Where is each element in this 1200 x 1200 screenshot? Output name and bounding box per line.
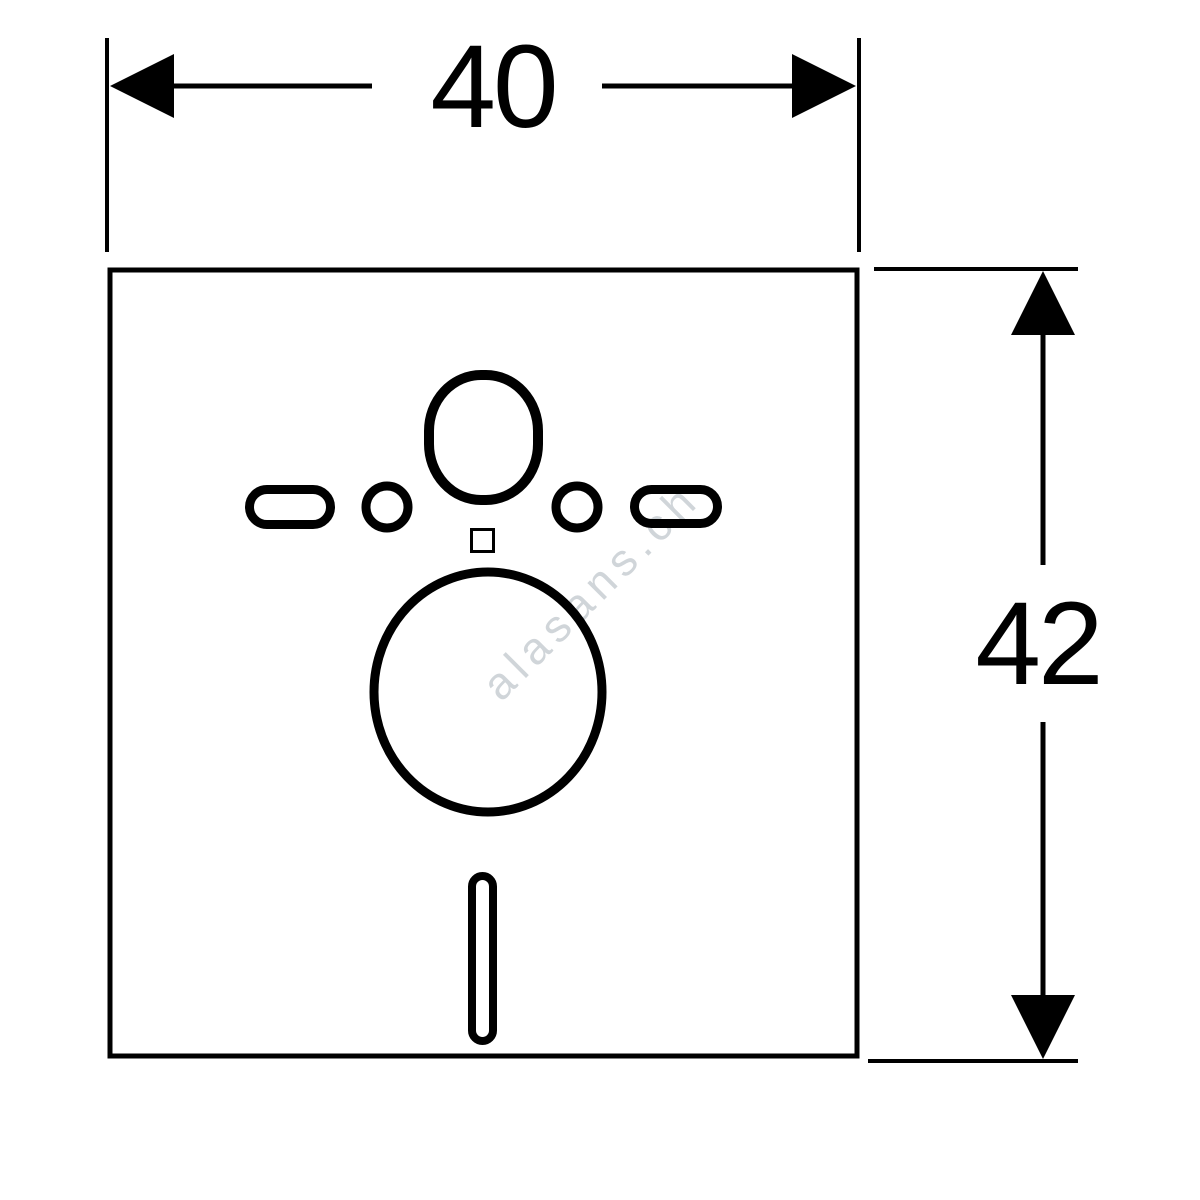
dim-width-arrow-right-icon	[792, 54, 856, 118]
cutout-square-small	[472, 530, 494, 552]
dimension-width: 40	[107, 21, 859, 252]
dim-width-value: 40	[430, 21, 555, 153]
cutout-slot-left	[250, 490, 331, 525]
cutout-hole-left	[366, 486, 408, 528]
dim-width-arrow-left-icon	[110, 54, 174, 118]
technical-drawing-canvas: alasans.ch 40 42	[0, 0, 1200, 1200]
dim-height-value: 42	[975, 578, 1100, 710]
mat-cutouts	[250, 375, 718, 1041]
watermark-text: alasans.ch	[472, 472, 710, 710]
cutout-oval-top	[429, 375, 538, 500]
cutout-slot-bottom	[472, 876, 493, 1041]
cutout-circle-large	[374, 572, 602, 812]
dim-height-arrow-down-icon	[1011, 995, 1075, 1059]
dimension-height: 42	[868, 269, 1101, 1061]
dim-height-arrow-up-icon	[1011, 271, 1075, 335]
cutout-hole-right	[556, 486, 598, 528]
drawing-svg: alasans.ch 40 42	[0, 0, 1200, 1200]
